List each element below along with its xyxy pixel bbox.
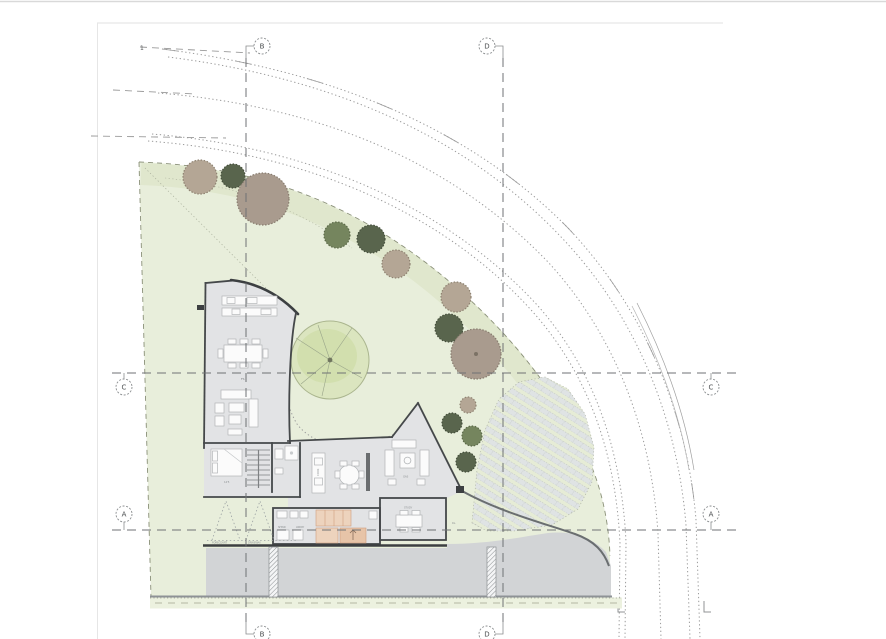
tree-icon (183, 160, 217, 194)
site-plan-drawing: 1 (0, 0, 886, 639)
grid-marker-d-top: D (479, 38, 495, 54)
grid-label-d2: D (484, 631, 489, 639)
kitchen-island: COOK (312, 453, 325, 493)
grid-marker-c-right: C (703, 379, 719, 395)
road-edge-dash-inner (91, 136, 226, 138)
shelving-unit (366, 453, 370, 491)
tree-icon (442, 413, 462, 433)
road-retaining-edge-1 (637, 303, 694, 470)
grid-label-c: C (122, 384, 127, 392)
grid-leader-b-bottom (246, 622, 254, 634)
study-label: STUDY (404, 506, 413, 510)
grid-marker-c-left: C (116, 379, 132, 395)
shower-label: SHWR (278, 525, 286, 529)
laundry-label: LNDRY (296, 525, 305, 529)
grid-leader-d-top (495, 46, 503, 58)
drainage-grate-right (487, 547, 496, 597)
grid-leader-d-bottom (495, 622, 503, 634)
grid-marker-b-top: B (254, 38, 270, 54)
rl-label: RL. (452, 521, 456, 525)
road-edge-dash-outer (140, 47, 250, 53)
grid-marker-a-right: A (703, 506, 719, 522)
grid-marker-a-left: A (116, 506, 132, 522)
tree-icon (462, 426, 482, 446)
grid-label-d: D (484, 43, 489, 51)
grid-marker-b-bottom: B (254, 626, 270, 639)
tree-icon (324, 222, 350, 248)
tree-icon (456, 452, 476, 472)
tree-icon (441, 282, 471, 312)
fs-label: FS (241, 377, 245, 381)
grid-marker-d-bottom: D (479, 626, 495, 639)
site-plan-page: 1 (0, 0, 886, 639)
gas-label: GAS (403, 475, 409, 479)
kerb-ramp-mark-right (704, 601, 711, 612)
tree-icon (460, 397, 476, 413)
courtyard-tree-trunk (328, 358, 333, 363)
grid-leader-b-top (246, 46, 254, 58)
tree-icon (237, 173, 289, 225)
road-retaining-edge-2 (632, 306, 689, 470)
bed-dim-label: 14'5 (224, 480, 230, 484)
tree-icon (382, 250, 410, 278)
driveway-label: DRIVEWAY (248, 541, 261, 545)
wall-pier (197, 305, 204, 310)
lawn-inner (297, 329, 357, 383)
tree-trunk-mark (474, 352, 478, 356)
forecourt-label: FORECOURT (212, 541, 228, 545)
pantry-cabinets (316, 510, 351, 526)
grid-label-b2: B (260, 631, 265, 639)
drainage-grate-left (269, 547, 278, 597)
grid-label-b: B (260, 43, 265, 51)
grid-label-a2: A (709, 511, 714, 519)
grid-label-a: A (122, 511, 127, 519)
tree-icon (357, 225, 385, 253)
road-note-label: 1 (140, 45, 144, 52)
cook-label: COOK (316, 468, 320, 476)
grid-label-c2: C (709, 384, 714, 392)
corner-post (456, 486, 464, 493)
road-edge-dash-mid (113, 90, 196, 94)
